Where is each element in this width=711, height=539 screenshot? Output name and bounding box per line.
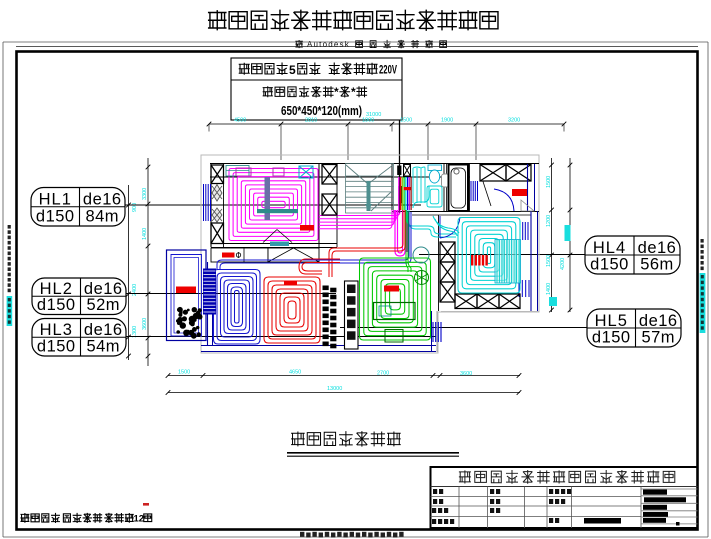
svg-text:1400: 1400	[546, 283, 552, 295]
svg-text:d150: d150	[592, 329, 631, 347]
svg-text:1400: 1400	[142, 228, 148, 240]
svg-text:2400: 2400	[132, 284, 138, 296]
svg-text:de16: de16	[83, 191, 122, 209]
svg-text:d150: d150	[37, 296, 76, 314]
svg-text:2700: 2700	[377, 371, 389, 377]
svg-text:3600: 3600	[460, 371, 472, 377]
svg-text:d150: d150	[36, 208, 75, 226]
svg-text:1900: 1900	[441, 118, 453, 124]
svg-text:2810: 2810	[305, 118, 317, 124]
svg-text:4200: 4200	[560, 258, 566, 270]
svg-text:HL4: HL4	[593, 239, 626, 257]
svg-text:Autodesk: Autodesk	[307, 40, 350, 49]
svg-text:*: *	[351, 85, 356, 99]
svg-text:56m: 56m	[640, 256, 674, 274]
svg-text:3200: 3200	[508, 118, 520, 124]
svg-text:HL1: HL1	[39, 191, 72, 209]
svg-text:de16: de16	[638, 239, 677, 257]
svg-text:HL3: HL3	[40, 321, 73, 339]
svg-text:13000: 13000	[327, 386, 342, 392]
svg-text:1800: 1800	[362, 118, 374, 124]
svg-text:1500: 1500	[546, 176, 552, 188]
svg-text:1500: 1500	[178, 370, 190, 376]
svg-text:3300: 3300	[142, 188, 148, 200]
svg-text:4500: 4500	[234, 118, 246, 124]
svg-text:*: *	[334, 85, 339, 99]
svg-text:1200: 1200	[546, 215, 552, 227]
svg-text:3600: 3600	[142, 318, 148, 330]
svg-text:84m: 84m	[85, 208, 119, 226]
svg-text:HL5: HL5	[595, 312, 628, 330]
svg-text:900: 900	[132, 203, 138, 212]
svg-text:5: 5	[289, 63, 296, 77]
svg-text:de16: de16	[84, 321, 123, 339]
svg-text:650*450*120(mm): 650*450*120(mm)	[281, 103, 362, 118]
svg-text:1500: 1500	[400, 118, 412, 124]
svg-text:52m: 52m	[86, 296, 120, 314]
svg-text:d150: d150	[590, 256, 629, 274]
svg-text:54m: 54m	[86, 338, 120, 356]
svg-text:4650: 4650	[289, 370, 301, 376]
svg-text:12: 12	[134, 514, 145, 525]
svg-text:1500: 1500	[546, 255, 552, 267]
svg-text:220V: 220V	[379, 65, 397, 77]
svg-text:d150: d150	[37, 338, 76, 356]
svg-text:57m: 57m	[641, 329, 675, 347]
svg-text:de16: de16	[639, 312, 678, 330]
